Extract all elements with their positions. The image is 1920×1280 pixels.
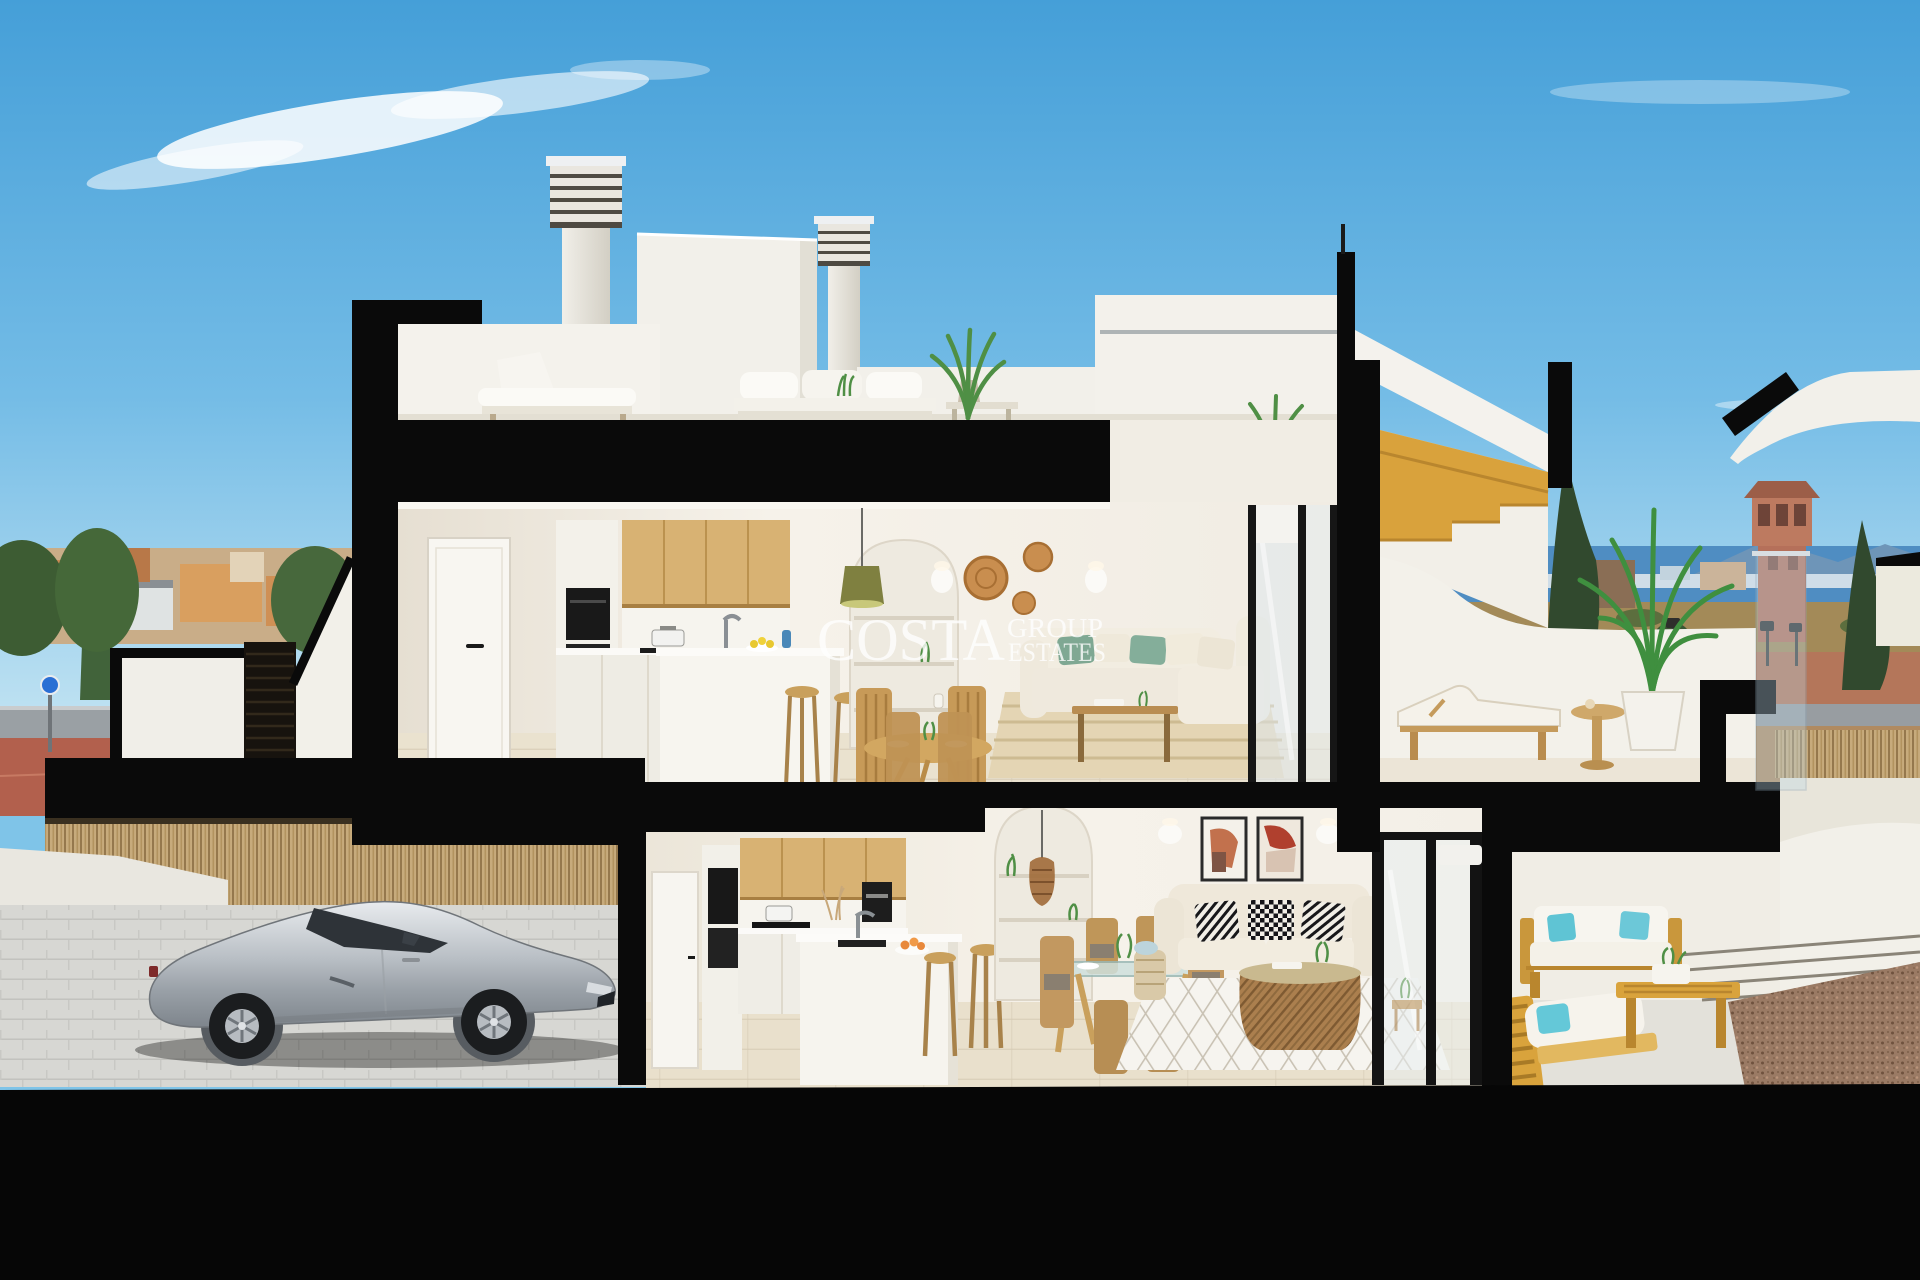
upper-sliding-door	[1248, 505, 1338, 788]
oven	[566, 588, 610, 640]
distant-building	[1700, 562, 1746, 590]
wheel-front	[461, 989, 527, 1055]
roller-blind	[1256, 505, 1300, 543]
lower-sliding-door	[1372, 832, 1482, 1085]
teal-pillow	[1536, 1003, 1571, 1035]
cut-garage-post	[618, 818, 646, 1085]
terrace-post	[1700, 680, 1726, 788]
watermark: COSTA GROUP ESTATES	[817, 607, 1106, 673]
cut-wall-left	[352, 300, 398, 794]
cut-roof-slab	[398, 420, 1110, 502]
kitchen-island-lower	[796, 913, 962, 1086]
dining-table-upper	[864, 733, 992, 763]
faucet	[724, 620, 728, 648]
cut-garage-beam	[45, 758, 645, 818]
lower-door	[652, 872, 698, 1068]
wheel-rear	[209, 993, 275, 1059]
neighbour-wall	[1876, 566, 1920, 646]
watermark-title: COSTA	[817, 607, 1005, 673]
patterned-cushion	[1248, 900, 1294, 940]
vase	[782, 630, 791, 648]
watermark-sub2: ESTATES	[1008, 638, 1106, 667]
garage	[0, 818, 646, 1087]
hob	[752, 922, 810, 928]
cut-wall-lower-right	[1482, 808, 1512, 1090]
ground	[0, 1084, 1920, 1280]
door-handle	[466, 644, 484, 648]
cornice	[1110, 420, 1337, 508]
teal-pillow	[1547, 913, 1577, 943]
roof-parapet-right	[1095, 295, 1337, 422]
oven	[708, 868, 738, 924]
patterned-cushion	[1300, 900, 1346, 942]
glass-rail-line	[1100, 330, 1337, 334]
cut-wall-right	[1337, 360, 1380, 852]
patterned-cushion	[1194, 900, 1240, 942]
coffee-machine	[862, 882, 892, 922]
roller-blind	[1438, 845, 1482, 865]
upper-door	[428, 538, 510, 778]
teal-pillow	[1619, 911, 1650, 940]
glass-balustrade	[1752, 551, 1810, 790]
taillight	[149, 966, 158, 977]
lower-sofa	[1154, 884, 1382, 976]
render-image: COSTA GROUP ESTATES	[0, 0, 1920, 1280]
roof-sofa	[734, 370, 936, 420]
sink	[838, 940, 886, 947]
